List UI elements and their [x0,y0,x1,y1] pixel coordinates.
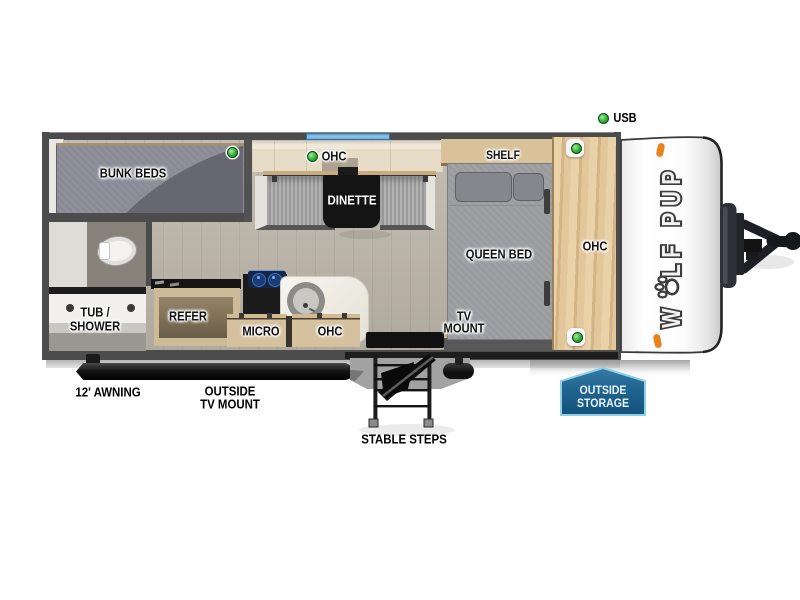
svg-text:LF PUP: LF PUP [657,164,686,276]
svg-text:W: W [657,308,686,328]
